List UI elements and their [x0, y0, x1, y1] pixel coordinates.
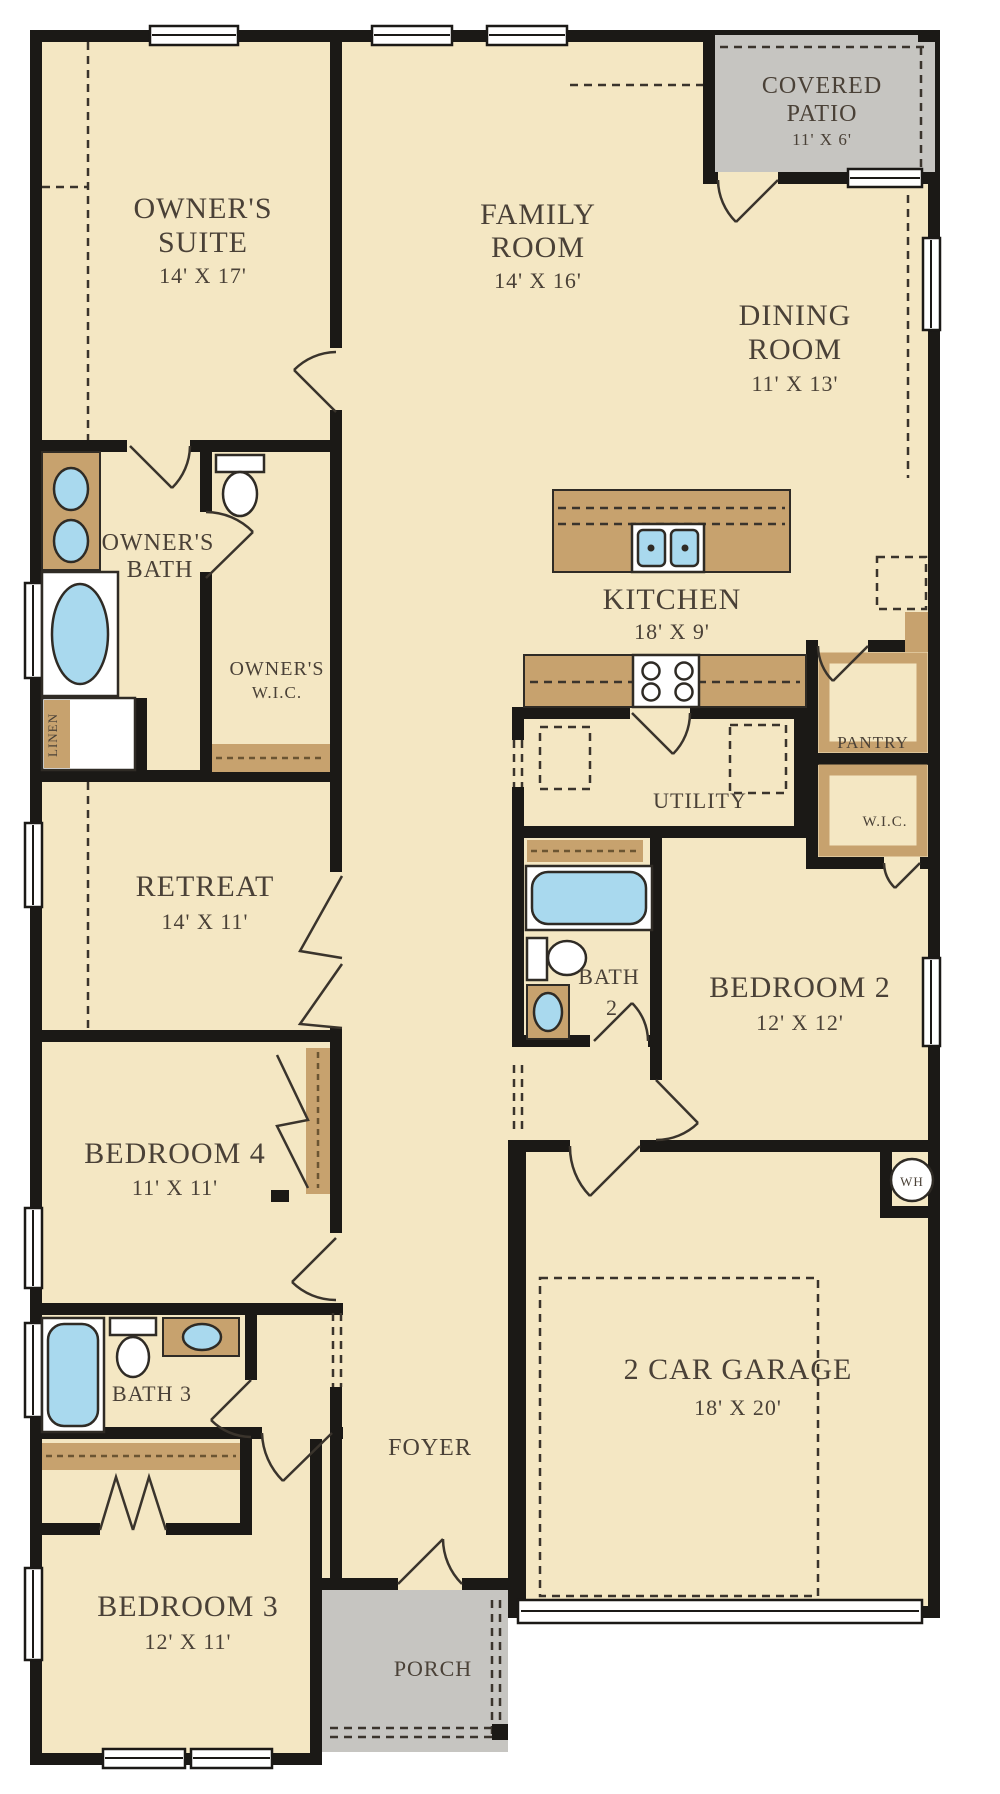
- garage-door: [518, 1600, 922, 1623]
- family-room-dims: 14' X 16': [494, 268, 582, 293]
- covered-patio-label-2: PATIO: [787, 101, 858, 127]
- bedroom4-dims: 11' X 11': [132, 1175, 218, 1200]
- bedroom2-label: BEDROOM 2: [709, 971, 891, 1004]
- kitchen-label: KITCHEN: [603, 583, 742, 616]
- window-bedroom3-bottom-1: [103, 1749, 185, 1768]
- owners-suite-dims: 14' X 17': [159, 263, 247, 288]
- linen-label: LINEN: [45, 713, 60, 757]
- retreat-dims: 14' X 11': [162, 909, 249, 934]
- window-family-top-2: [487, 26, 567, 45]
- floor-plan-page: WH OWNER'S SUI: [0, 0, 1000, 1794]
- window-bedroom2-right: [923, 958, 940, 1046]
- dining-room-dims: 11' X 13': [752, 371, 839, 396]
- foyer-label: FOYER: [388, 1435, 472, 1461]
- floor-plan: WH OWNER'S SUI: [0, 0, 1000, 1794]
- bath3-sink: [163, 1318, 239, 1356]
- family-room-label-2: ROOM: [491, 231, 585, 264]
- bath3-label: BATH 3: [112, 1381, 192, 1406]
- covered-patio-dims: 11' X 6': [792, 130, 852, 149]
- owners-bath-label-2: BATH: [127, 557, 194, 583]
- owners-wic-label: OWNER'S: [229, 658, 324, 680]
- bath2-tub: [526, 866, 652, 930]
- window-retreat-left: [25, 823, 42, 907]
- dining-room-label-2: ROOM: [748, 333, 842, 366]
- window-bath3-left: [25, 1323, 42, 1417]
- bedroom3-label: BEDROOM 3: [97, 1590, 279, 1623]
- window-family-top-1: [372, 26, 452, 45]
- bath2-label: BATH: [578, 964, 639, 989]
- garage-dims: 18' X 20': [694, 1395, 782, 1420]
- covered-patio-label: COVERED: [762, 73, 882, 99]
- wic2-label: W.I.C.: [862, 814, 907, 830]
- window-patio-dining: [848, 169, 922, 187]
- dining-counter: [905, 612, 928, 652]
- bath3-tub: [42, 1318, 104, 1432]
- owners-bath-tub: [42, 572, 118, 696]
- window-bedroom3-bottom-2: [191, 1749, 272, 1768]
- window-owners-bath-left: [25, 583, 42, 678]
- family-room-label: FAMILY: [480, 198, 596, 231]
- retreat-label: RETREAT: [136, 870, 275, 903]
- bedroom3-dims: 12' X 11': [145, 1629, 232, 1654]
- utility-label: UTILITY: [653, 788, 747, 813]
- kitchen-dims: 18' X 9': [634, 619, 710, 644]
- water-heater: WH: [891, 1159, 933, 1201]
- water-heater-label: WH: [900, 1174, 924, 1189]
- dining-room-label: DINING: [739, 299, 852, 332]
- bath2-label-2: 2: [606, 995, 618, 1020]
- window-bedroom3-left: [25, 1568, 42, 1660]
- window-owners-suite-top: [150, 26, 238, 45]
- pantry-label: PANTRY: [837, 733, 909, 752]
- garage-label: 2 CAR GARAGE: [624, 1353, 853, 1386]
- bedroom2-dims: 12' X 12': [756, 1010, 844, 1035]
- owners-bath-label: OWNER'S: [102, 530, 215, 556]
- window-bedroom4-left: [25, 1208, 42, 1288]
- porch-label: PORCH: [394, 1656, 472, 1681]
- owners-wic-label-2: W.I.C.: [252, 683, 302, 702]
- owners-suite-label: OWNER'S: [133, 192, 272, 225]
- window-dining-right: [923, 238, 940, 330]
- owners-bath-sink-2: [54, 520, 88, 562]
- owners-bath-sink-1: [54, 468, 88, 510]
- bedroom4-label: BEDROOM 4: [84, 1137, 266, 1170]
- porch-post: [492, 1724, 508, 1740]
- owners-suite-label-2: SUITE: [158, 226, 248, 259]
- bath2-sink: [527, 985, 569, 1039]
